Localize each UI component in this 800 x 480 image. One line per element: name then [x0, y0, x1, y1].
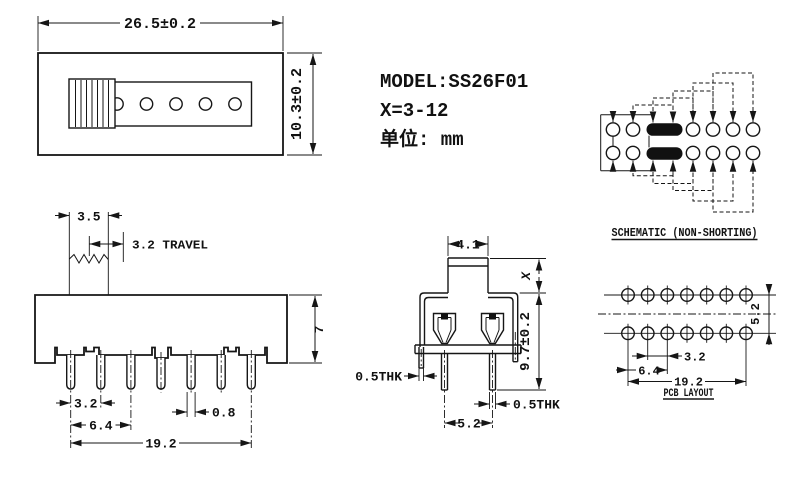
top-view-height-dimension: 10.3±0.2 — [287, 53, 322, 155]
pcb-layout-title: PCB LAYOUT — [664, 388, 714, 400]
side-pin-thickness-label: 0.5THK — [513, 398, 560, 413]
front-view: 3.5 3.2 TRAVEL — [35, 210, 327, 452]
front-travel-label: 3.2 TRAVEL — [132, 239, 208, 253]
schematic-dashed-links-top — [633, 73, 753, 116]
front-body-height-label: 7 — [312, 326, 327, 334]
side-pin-pitch-dimension: 5.2 — [445, 417, 493, 432]
title-block: MODEL:SS26F01 X=3-12 单位: mm — [380, 71, 528, 151]
side-knob-width-dimension: 4.1 — [448, 236, 488, 256]
front-pin-span-dimension: 19.2 — [71, 437, 252, 452]
slider-knob-top — [69, 79, 115, 128]
top-height-label: 10.3±0.2 — [289, 68, 306, 140]
pcb-hole-pitch-dimension: 3.2 — [632, 351, 706, 365]
front-pin-pitch2-label: 6.4 — [89, 419, 113, 434]
schematic-terminals-row1 — [606, 123, 759, 136]
front-travel-dimension: 3.2 TRAVEL — [89, 239, 208, 253]
side-pin-pitch-label: 5.2 — [457, 417, 481, 432]
pcb-hole-pitch2-dimension: 6.4 — [616, 365, 667, 379]
front-pin-width-label: 0.8 — [212, 406, 236, 421]
side-tab-thickness-dimension: 0.5THK — [355, 368, 437, 385]
positions-label: X=3-12 — [380, 100, 448, 122]
front-pin-pitch-dimension: 3.2 — [56, 397, 115, 412]
top-width-label: 26.5±0.2 — [124, 16, 196, 33]
side-knob-width-label: 4.1 — [456, 238, 480, 253]
front-knob-width-dimension: 3.5 — [55, 210, 122, 225]
front-body-height-dimension: 7 — [289, 295, 327, 363]
pcb-hole-pitch-label: 3.2 — [684, 351, 706, 365]
pcb-layout: 5.2 3.2 6.4 19.2 PCB LAYOUT — [598, 284, 776, 400]
side-body-height-label: 9.7±0.2 — [518, 312, 534, 371]
slider-contact-row2 — [647, 147, 683, 160]
front-pin-width-dimension: 0.8 — [172, 406, 236, 421]
schematic-terminals-row2 — [606, 146, 759, 160]
schematic-solid-link — [601, 115, 653, 171]
pcb-hole-pitch2-label: 6.4 — [638, 365, 660, 379]
front-knob-width-label: 3.5 — [77, 210, 101, 225]
side-pin-thickness-dimension: 0.5THK — [474, 392, 560, 413]
side-tab-thickness-label: 0.5THK — [355, 370, 402, 385]
schematic-dashed-links-bottom — [633, 167, 753, 213]
front-pin-pitch-label: 3.2 — [74, 397, 98, 412]
side-view: 4.1 — [355, 236, 560, 432]
model-label: MODEL:SS26F01 — [380, 71, 528, 93]
front-pin-pitch2-dimension: 6.4 — [71, 419, 131, 434]
pcb-row-pitch-label: 5.2 — [749, 303, 763, 325]
schematic-diagram: SCHEMATIC (NON-SHORTING) — [601, 73, 760, 240]
side-base-plate — [415, 345, 521, 354]
side-knob-height-label: X — [519, 271, 534, 281]
technical-drawing-sheet: 26.5±0.2 10.3±0.2 MODEL:SS26F01 X=3-12 单… — [0, 0, 800, 480]
unit-label: 单位: mm — [380, 127, 464, 151]
knob-break-zigzag — [69, 255, 108, 264]
slider-contact-row1 — [647, 123, 683, 136]
side-mount-tabs — [419, 332, 518, 368]
top-view-width-dimension: 26.5±0.2 — [38, 16, 283, 51]
side-terminal-contacts — [434, 314, 504, 344]
front-pin-span-label: 19.2 — [145, 437, 176, 452]
top-view: 26.5±0.2 10.3±0.2 — [38, 16, 322, 155]
side-knob — [448, 258, 488, 293]
schematic-title: SCHEMATIC (NON-SHORTING) — [612, 226, 758, 240]
